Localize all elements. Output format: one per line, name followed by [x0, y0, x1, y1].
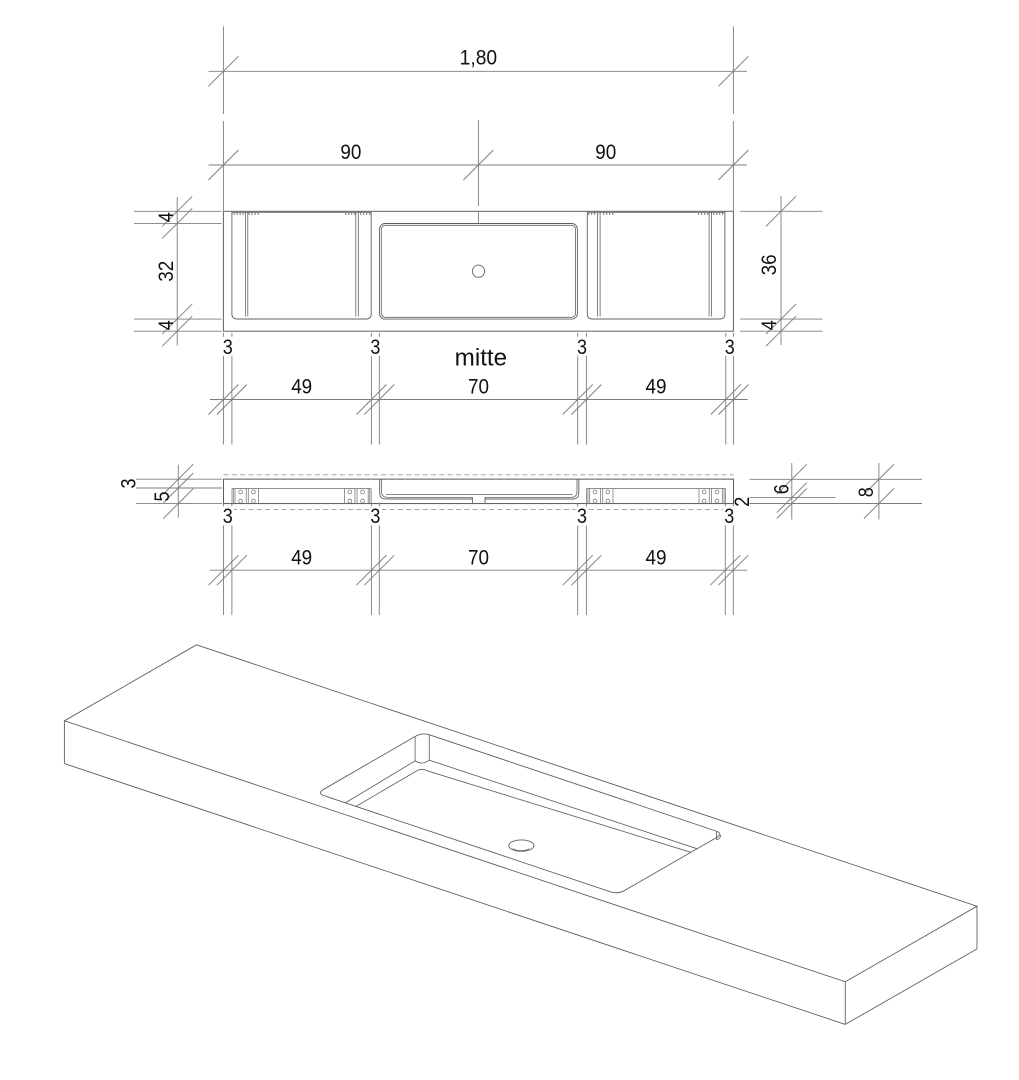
svg-text:3: 3	[116, 478, 140, 488]
svg-text:70: 70	[468, 375, 489, 399]
svg-text:3: 3	[724, 504, 734, 528]
svg-text:3: 3	[370, 335, 380, 359]
svg-text:1,80: 1,80	[460, 46, 498, 70]
svg-text:3: 3	[577, 504, 587, 528]
svg-text:6: 6	[769, 484, 793, 494]
svg-text:3: 3	[223, 335, 233, 359]
svg-text:32: 32	[154, 261, 178, 282]
svg-text:90: 90	[340, 140, 361, 164]
svg-text:3: 3	[725, 335, 735, 359]
svg-text:8: 8	[854, 487, 878, 497]
svg-text:49: 49	[291, 545, 312, 569]
svg-text:36: 36	[757, 254, 781, 275]
svg-text:mitte: mitte	[455, 345, 508, 372]
svg-text:90: 90	[595, 140, 616, 164]
svg-text:5: 5	[150, 491, 174, 501]
svg-text:4: 4	[154, 320, 178, 330]
svg-text:4: 4	[757, 320, 781, 330]
svg-text:3: 3	[370, 504, 380, 528]
svg-text:70: 70	[468, 545, 489, 569]
svg-text:49: 49	[291, 375, 312, 399]
svg-text:4: 4	[154, 212, 178, 222]
svg-text:49: 49	[646, 545, 667, 569]
svg-text:49: 49	[646, 375, 667, 399]
svg-text:3: 3	[223, 504, 233, 528]
svg-text:3: 3	[577, 335, 587, 359]
